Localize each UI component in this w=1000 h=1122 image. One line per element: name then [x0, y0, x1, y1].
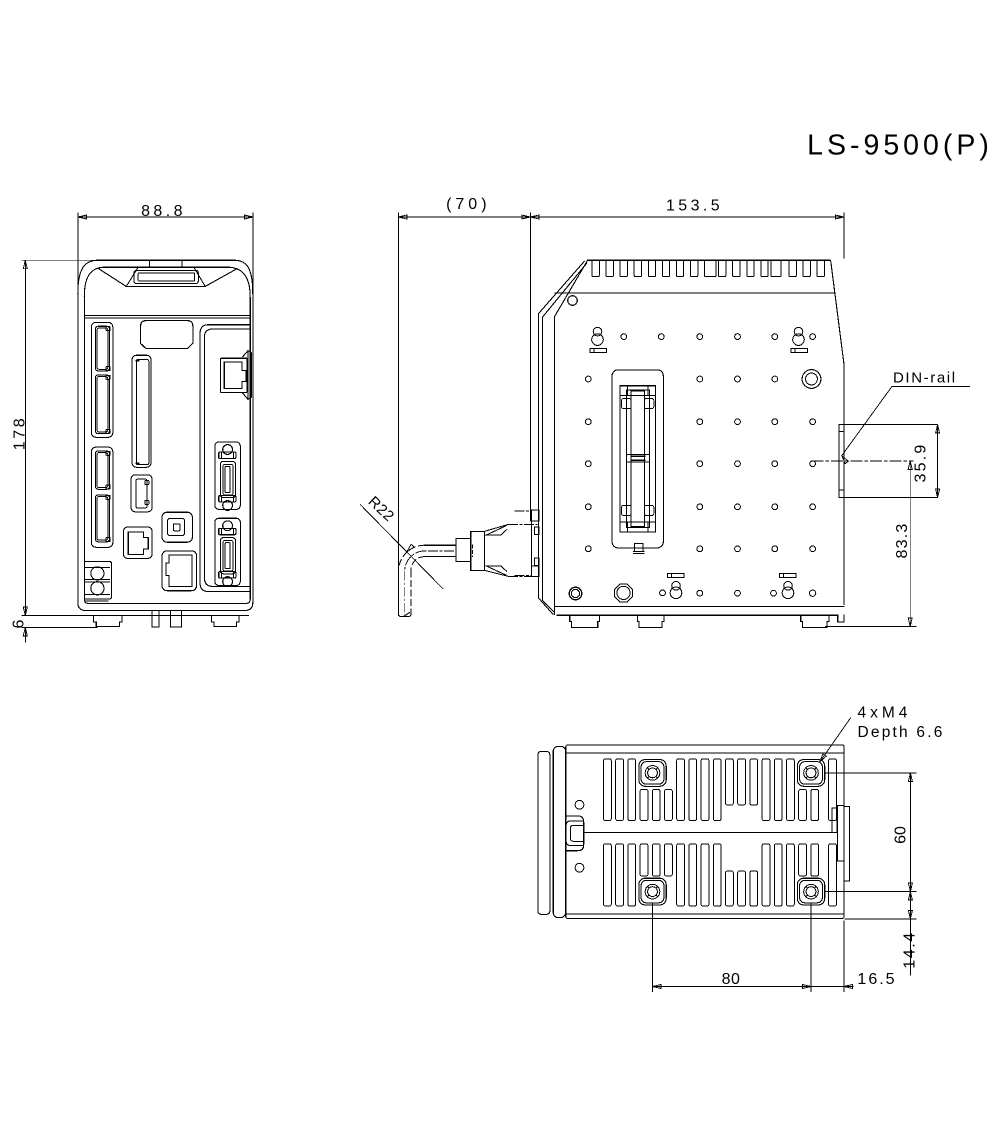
svg-text:83.3: 83.3 [894, 523, 911, 559]
svg-text:178: 178 [12, 416, 29, 451]
svg-text:LS-9500(P): LS-9500(P) [807, 130, 993, 162]
svg-text:DIN-rail: DIN-rail [893, 370, 957, 387]
svg-text:88.8: 88.8 [141, 203, 186, 220]
svg-text:80: 80 [722, 971, 741, 988]
svg-text:R22: R22 [365, 493, 398, 525]
svg-text:35.9: 35.9 [913, 443, 930, 483]
svg-text:(70): (70) [446, 196, 490, 213]
svg-text:60: 60 [893, 826, 910, 844]
svg-text:153.5: 153.5 [666, 198, 723, 215]
svg-text:6: 6 [11, 619, 28, 628]
svg-text:4xM4: 4xM4 [858, 705, 912, 722]
svg-text:14.4: 14.4 [902, 931, 919, 969]
svg-text:16.5: 16.5 [857, 971, 896, 988]
svg-text:Depth 6.6: Depth 6.6 [858, 724, 945, 741]
